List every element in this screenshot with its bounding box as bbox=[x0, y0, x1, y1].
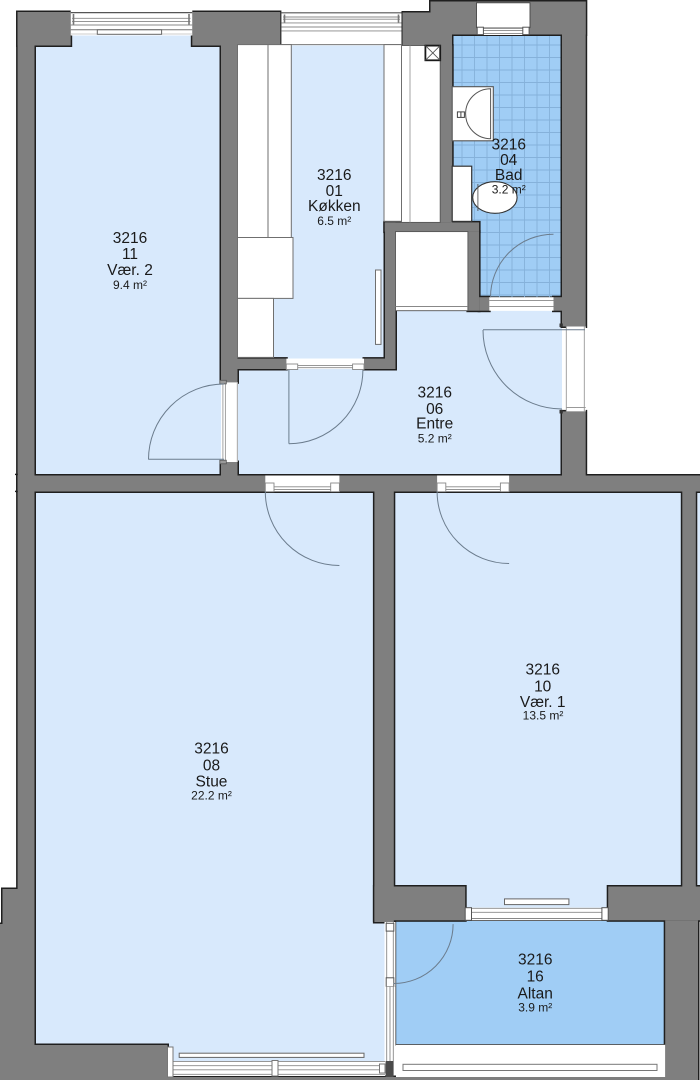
svg-text:Vær. 2: Vær. 2 bbox=[107, 262, 153, 279]
svg-text:13.5 m²: 13.5 m² bbox=[523, 708, 564, 722]
svg-text:11: 11 bbox=[122, 246, 138, 263]
svg-text:Entre: Entre bbox=[416, 415, 453, 432]
svg-text:3216: 3216 bbox=[518, 951, 552, 968]
svg-text:3.9 m²: 3.9 m² bbox=[518, 1000, 552, 1014]
svg-text:3216: 3216 bbox=[194, 741, 228, 758]
svg-text:3216: 3216 bbox=[317, 167, 351, 184]
svg-text:3.2 m²: 3.2 m² bbox=[492, 183, 526, 197]
svg-text:08: 08 bbox=[203, 758, 220, 775]
svg-text:3216: 3216 bbox=[113, 230, 147, 247]
svg-text:5.2 m²: 5.2 m² bbox=[418, 432, 452, 446]
svg-text:16: 16 bbox=[527, 969, 544, 986]
svg-text:3216: 3216 bbox=[417, 385, 451, 402]
svg-text:22.2 m²: 22.2 m² bbox=[191, 789, 232, 803]
svg-text:9.4 m²: 9.4 m² bbox=[113, 278, 147, 292]
svg-text:Køkken: Køkken bbox=[308, 198, 361, 215]
svg-text:6.5 m²: 6.5 m² bbox=[317, 214, 351, 228]
svg-text:3216: 3216 bbox=[525, 662, 559, 679]
svg-text:10: 10 bbox=[534, 678, 552, 695]
